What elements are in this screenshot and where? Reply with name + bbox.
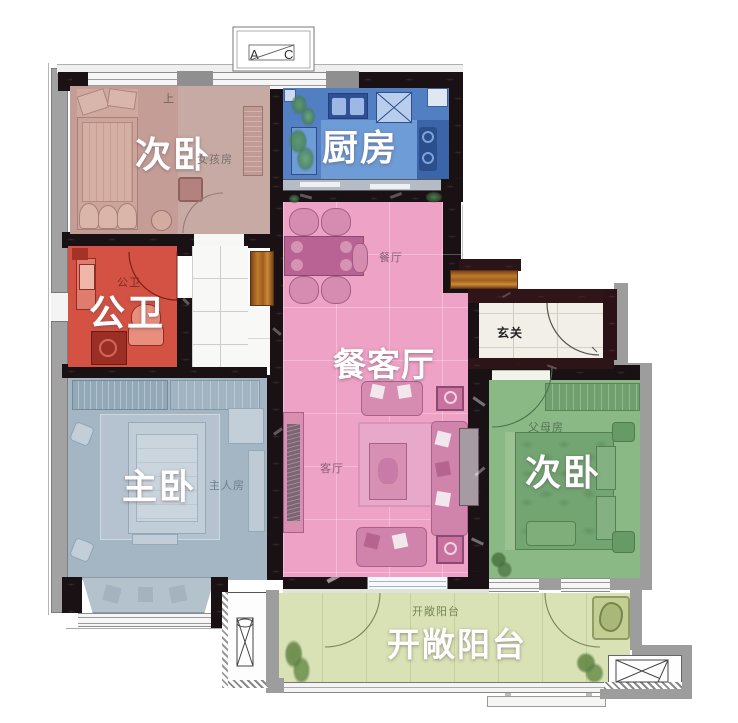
svg-text:C: C	[284, 47, 293, 62]
